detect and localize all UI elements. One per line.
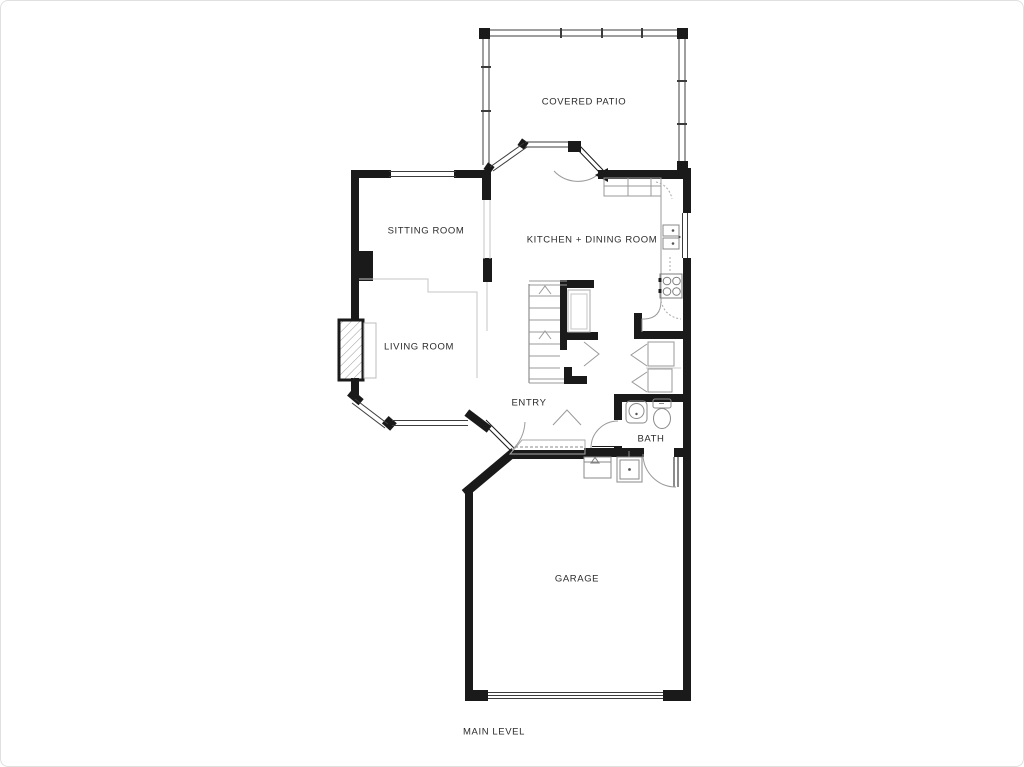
front-door-swing-arc — [512, 422, 525, 450]
wall-bay-corner — [382, 416, 397, 431]
range-cooktop-icon — [659, 274, 683, 298]
coat-closet — [510, 410, 585, 454]
label-living-room: LIVING ROOM — [384, 342, 454, 353]
closet-door-mark-upper — [631, 344, 647, 366]
wall-bath-left-upper — [614, 394, 622, 420]
kitchen-double-sink-icon — [663, 225, 681, 249]
water-heater-icon — [584, 457, 611, 478]
bay-window-front — [392, 421, 468, 426]
wall-east-main — [683, 258, 691, 701]
closet-box-lower — [648, 369, 672, 392]
label-kitchen-dining: KITCHEN + DINING ROOM — [527, 235, 658, 246]
wall-stairs-right — [560, 280, 567, 350]
wall-garage-bottom-right — [663, 690, 691, 701]
fireplace-hearth — [364, 323, 376, 378]
fireplace — [339, 320, 376, 380]
linen-closets — [631, 342, 681, 392]
wall-garage-bottom-left — [465, 690, 488, 701]
wall-stairs-bottom-horiz — [564, 376, 587, 384]
patio-windows — [490, 142, 568, 171]
floor-plan-page: COVERED PATIO SITTING ROOM KITCHEN + DIN… — [0, 0, 1024, 767]
label-bath: BATH — [637, 434, 664, 445]
label-garage: GARAGE — [555, 574, 599, 585]
toilet-icon — [653, 399, 671, 429]
patio-door-swing-arc — [554, 171, 601, 181]
fireplace-box — [339, 320, 363, 380]
windows — [352, 172, 688, 429]
closet-door-mark-lower — [632, 372, 647, 392]
coat-closet-door-mark — [553, 410, 581, 425]
bath-door-swing-arc — [591, 421, 618, 448]
label-covered-patio: COVERED PATIO — [542, 97, 627, 108]
wall-bath-top — [614, 394, 691, 402]
wall-east-top — [683, 168, 691, 213]
pantry-door-mark — [584, 342, 599, 366]
stairs-up-arrow — [539, 286, 551, 294]
floorplan-svg — [1, 1, 1024, 767]
wall-west-upper — [351, 170, 359, 319]
pedestal-sink-icon — [626, 401, 647, 423]
kitchen-east-window — [683, 213, 688, 258]
wall-kitchen-se-horiz — [634, 331, 691, 339]
wall-pantry-bottom — [562, 332, 598, 340]
garage-entry-door — [643, 454, 678, 487]
label-sitting-room: SITTING ROOM — [388, 226, 465, 237]
wall-sitting-kitchen-stub-upper — [482, 170, 491, 200]
closet-box-upper — [648, 342, 674, 366]
wall-west-pier — [359, 251, 373, 281]
garage-vehicle-door — [488, 693, 663, 699]
label-entry: ENTRY — [511, 398, 546, 409]
bath-door — [591, 421, 618, 450]
sitting-room-window — [389, 172, 456, 177]
garage-entry-door-swing-arc — [643, 454, 676, 487]
kitchen-counter — [604, 178, 681, 332]
label-main-level: MAIN LEVEL — [463, 727, 525, 738]
wall-garage-north-corner — [674, 448, 691, 457]
wall-garage-west — [465, 487, 473, 701]
wall-sitting-kitchen-stub-lower — [483, 258, 492, 282]
pantry-closet — [568, 290, 599, 366]
